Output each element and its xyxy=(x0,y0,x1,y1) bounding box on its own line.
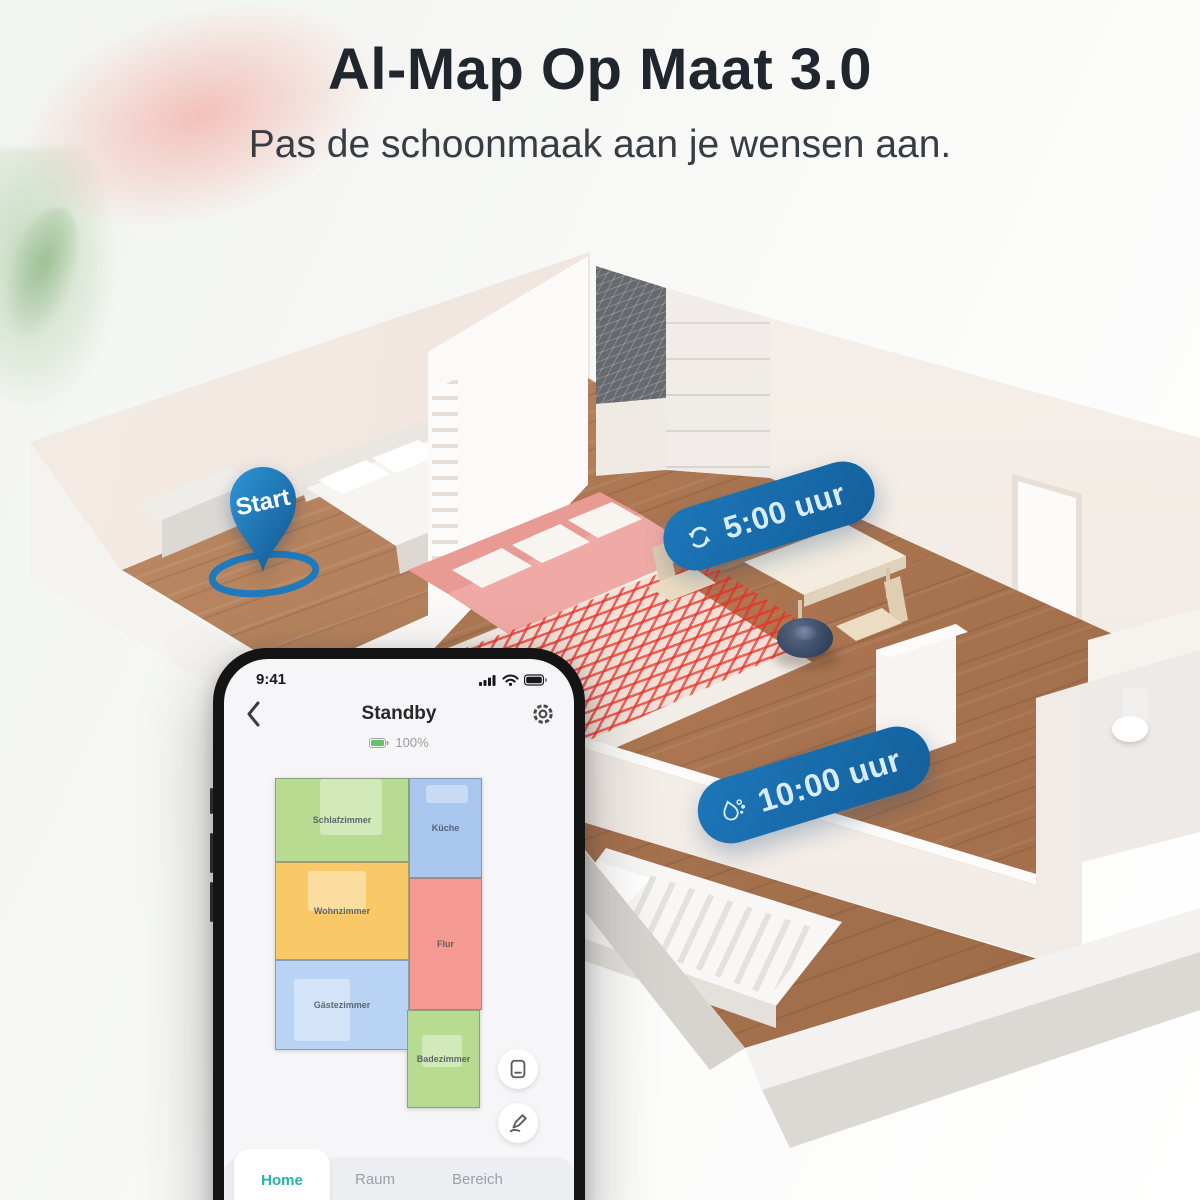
map-list-icon xyxy=(507,1058,529,1080)
floor-plan-map: Schlafzimmer Küche Wohnzimmer Flur Gäste… xyxy=(275,778,482,1108)
room-label: Flur xyxy=(437,939,454,949)
tab-raum[interactable]: Raum xyxy=(355,1171,395,1188)
tab-home-label: Home xyxy=(261,1172,303,1189)
status-icons xyxy=(479,674,548,686)
room-label: Wohnzimmer xyxy=(314,906,370,916)
app-screen: 9:41 xyxy=(224,659,574,1200)
tab-bereich[interactable]: Bereich xyxy=(452,1171,503,1188)
map-room-badezimmer[interactable]: Badezimmer xyxy=(407,1010,480,1108)
water-drop-icon xyxy=(717,789,751,831)
room-label: Küche xyxy=(432,823,460,833)
map-room-gaestezimmer[interactable]: Gästezimmer xyxy=(275,960,409,1050)
robot-battery-percent: 100% xyxy=(395,735,428,750)
headline: Al-Map Op Maat 3.0 Pas de schoonmaak aan… xyxy=(0,36,1200,167)
robot-battery-row: 100% xyxy=(224,735,574,750)
house-render: Start 5:00 uur 10:00 uur xyxy=(0,0,1200,1200)
spin-cycle-icon xyxy=(682,516,716,558)
map-room-flur[interactable]: Flur xyxy=(409,878,482,1010)
phone-volume-down-button xyxy=(210,882,213,922)
room-label: Gästezimmer xyxy=(314,1000,371,1010)
phone-volume-up-button xyxy=(210,833,213,873)
phone-mockup: 9:41 xyxy=(213,648,585,1200)
page-subtitle: Pas de schoonmaak aan je wensen aan. xyxy=(0,123,1200,167)
map-room-wohnzimmer[interactable]: Wohnzimmer xyxy=(275,862,409,960)
tab-home[interactable]: Home xyxy=(234,1149,330,1200)
room-label: Badezimmer xyxy=(417,1054,471,1064)
map-edit-button[interactable] xyxy=(498,1103,538,1143)
room-label: Schlafzimmer xyxy=(313,815,372,825)
status-time: 9:41 xyxy=(256,671,286,688)
page-title: Al-Map Op Maat 3.0 xyxy=(0,36,1200,103)
battery-level-icon xyxy=(369,738,389,748)
battery-icon xyxy=(524,674,548,686)
map-list-button[interactable] xyxy=(498,1049,538,1089)
robot-status-title: Standby xyxy=(224,703,574,725)
robot-vacuum-top xyxy=(793,626,817,640)
promo-page: Al-Map Op Maat 3.0 Pas de schoonmaak aan… xyxy=(0,0,1200,1200)
signal-icon xyxy=(479,674,497,686)
phone-mute-switch xyxy=(210,788,213,814)
wifi-icon xyxy=(502,674,519,686)
map-room-kueche[interactable]: Küche xyxy=(409,778,482,878)
map-room-schlafzimmer[interactable]: Schlafzimmer xyxy=(275,778,409,862)
location-pin-icon: Start xyxy=(218,458,308,578)
gear-icon[interactable] xyxy=(530,701,556,727)
toilet-bowl xyxy=(1112,716,1148,742)
map-edit-icon xyxy=(507,1112,529,1134)
bottom-tab-bar: Home Raum Bereich xyxy=(224,1157,574,1200)
